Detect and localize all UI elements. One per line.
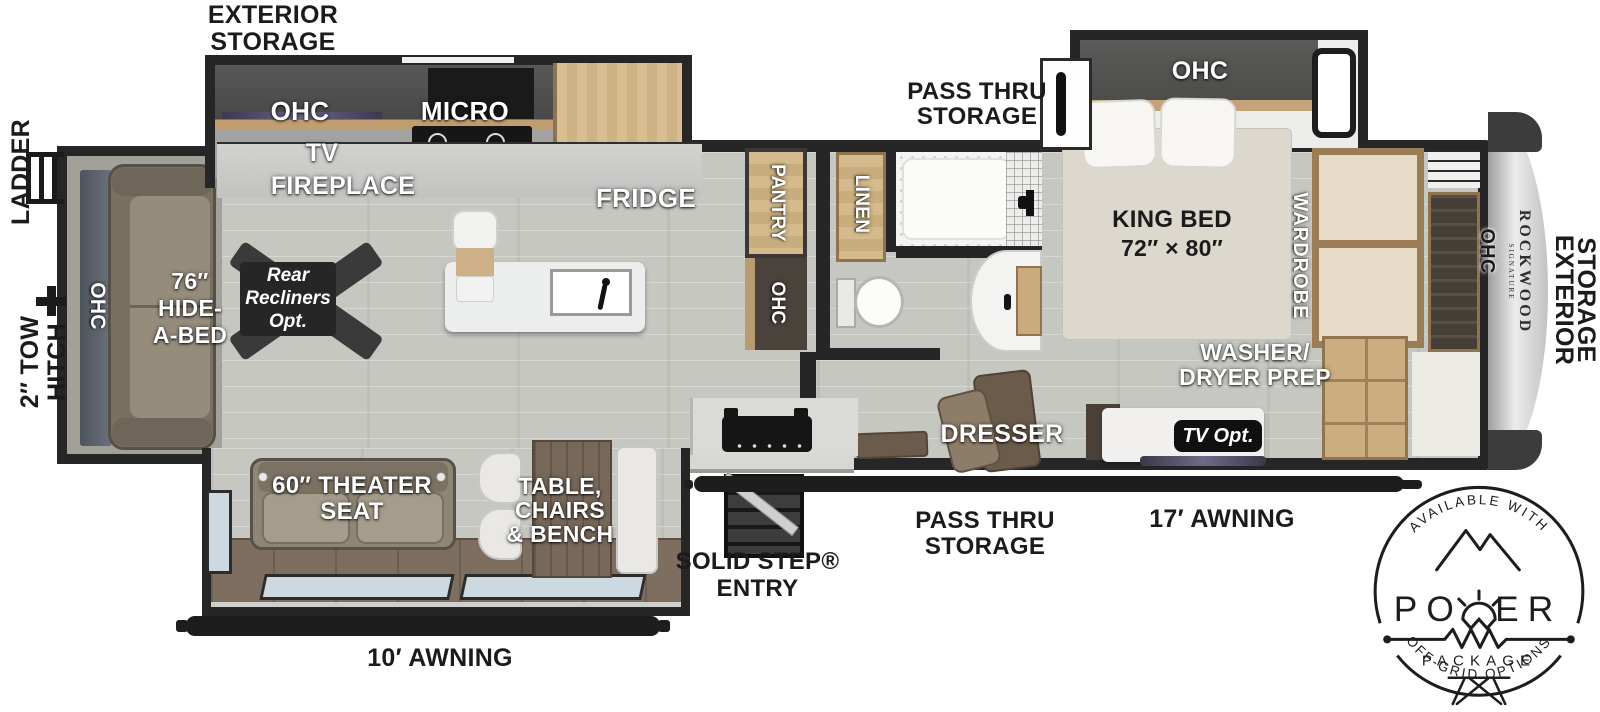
label-exterior-storage-top: EXTERIOR STORAGE	[160, 2, 386, 56]
front-slat-cabinet	[1428, 192, 1480, 352]
label-line: HITCH	[44, 282, 71, 442]
label-wardrobe: WARDROBE	[1287, 181, 1311, 331]
label-line: EXTERIOR	[160, 2, 386, 29]
grill-knobs	[732, 442, 802, 450]
label-ohc-kitchen: OHC	[250, 96, 350, 127]
label-ladder: LADDER	[7, 102, 37, 242]
bedroom-window	[1312, 48, 1356, 138]
wardrobe-frame	[1312, 148, 1424, 348]
recliners-option-box: Rear Recliners Opt.	[240, 262, 336, 336]
tv-opt-badge: TV Opt.	[1174, 420, 1262, 452]
fridge-cabinet	[553, 63, 682, 151]
badge-power-left: PO	[1394, 590, 1463, 629]
vanity-shelf	[1016, 266, 1042, 336]
label-line: TABLE,	[470, 474, 650, 498]
brand-name: ROCKWOOD	[1515, 197, 1533, 347]
label-line: KING BED	[1072, 206, 1272, 234]
slide-window-left	[206, 490, 232, 574]
recliners-option-label: Opt.	[240, 310, 336, 333]
flat-tv	[1140, 456, 1266, 466]
shower-head-icon	[1018, 196, 1031, 209]
closet-floor	[1412, 352, 1480, 456]
island-sink	[550, 269, 632, 316]
mountains-icon	[1437, 531, 1520, 570]
label-pass-thru-top: PASS THRU STORAGE	[877, 79, 1077, 129]
entry-step-pad	[856, 431, 929, 459]
awning-bar-front	[694, 476, 1404, 492]
pillow	[1081, 99, 1157, 170]
awning-cap	[684, 480, 693, 489]
label-line: ENTRY	[655, 575, 860, 602]
label-micro: MICRO	[405, 96, 525, 127]
label-dresser: DRESSER	[922, 420, 1082, 449]
bath-wall-bottom	[816, 348, 940, 360]
bath-wall-inner	[886, 152, 896, 252]
kitchen-slide-topper	[402, 57, 514, 63]
label-line: PASS THRU	[885, 508, 1085, 534]
entry-sill	[690, 469, 854, 473]
badge-power-right: ER	[1495, 590, 1562, 629]
label-ohc-front: OHC	[1476, 219, 1498, 283]
sofa-arm-top	[112, 168, 212, 196]
awning-cap	[658, 620, 670, 632]
bath-wall-left	[816, 140, 830, 360]
label-ohc-bedroom: OHC	[1150, 57, 1250, 86]
label-fridge: FRIDGE	[566, 183, 726, 214]
front-cap-corner-bottom	[1488, 430, 1542, 470]
power-package-badge: AVAILABLE WITH OFF-GRID OPTIONS PO ER PA…	[1358, 472, 1600, 710]
island-chair-base	[456, 276, 494, 302]
label-line: & BENCH	[470, 522, 650, 546]
label-line: SOLID STEP®	[655, 548, 860, 575]
label-exterior-storage-right-2: STORAGE	[1572, 225, 1600, 375]
label-line: PASS THRU	[877, 79, 1077, 104]
vanity-faucet	[1004, 294, 1011, 310]
toilet-bowl	[854, 276, 904, 328]
label-line: 2″ TOW	[17, 282, 44, 442]
label-dinette: TABLE, CHAIRS & BENCH	[470, 474, 650, 546]
awning-cap	[176, 620, 188, 632]
island-chair-cushion	[456, 248, 494, 276]
label-awning-rear: 10′ AWNING	[340, 644, 540, 673]
label-line: STORAGE	[885, 534, 1085, 560]
label-line: HIDE-	[132, 295, 248, 322]
label-fireplace: FIREPLACE	[243, 172, 443, 201]
label-line: CHAIRS	[470, 498, 650, 522]
label-line: 60″ THEATER	[252, 473, 452, 499]
label-line: A-BED	[132, 322, 248, 349]
toilet-tank	[836, 278, 856, 328]
front-cap-corner-top	[1488, 112, 1542, 152]
badge-top-text: AVAILABLE WITH	[1406, 492, 1552, 535]
label-line: SEAT	[252, 499, 452, 525]
label-line: WASHER/	[1150, 340, 1360, 365]
label-linen: LINEN	[850, 156, 872, 252]
sofa-arm-bottom	[112, 418, 212, 446]
label-ohc-lower: OHC	[766, 268, 788, 338]
label-tow-hitch: 2″ TOW HITCH	[17, 282, 73, 442]
slide-window-1	[259, 574, 455, 600]
recliners-option-label: Recliners	[240, 287, 336, 310]
label-ohc-rear: OHC	[85, 261, 109, 351]
label-tv: TV	[282, 139, 362, 168]
wardrobe-divider	[1312, 240, 1424, 248]
slide-trim-strip	[211, 602, 681, 607]
label-line: 76″	[132, 268, 248, 295]
shower-pan	[902, 158, 1010, 240]
sun-icon	[1459, 591, 1499, 628]
label-washer-dryer: WASHER/ DRYER PREP	[1150, 340, 1360, 390]
label-theater-seat: 60″ THEATER SEAT	[252, 473, 452, 525]
island-chair-back	[452, 210, 498, 252]
pillow	[1159, 97, 1236, 168]
label-solid-step-entry: SOLID STEP® ENTRY	[655, 548, 860, 602]
label-line: STORAGE	[877, 104, 1077, 129]
recliners-option-label: Rear	[240, 264, 336, 287]
label-line: 72″ × 80″	[1072, 234, 1272, 262]
label-king-bed: KING BED 72″ × 80″	[1072, 206, 1272, 262]
label-line: DRYER PREP	[1150, 365, 1360, 390]
label-line: STORAGE	[160, 29, 386, 56]
front-ohc-panel	[1428, 150, 1480, 188]
awning-bar-rear	[186, 616, 660, 636]
label-rockwood: ROCKWOOD SIGNATURE	[1503, 197, 1533, 347]
label-pantry: PANTRY	[766, 151, 788, 255]
floorplan-canvas: Rear Recliners Opt. EXTERIOR STORAGE LAD…	[0, 0, 1600, 712]
label-awning-front: 17′ AWNING	[1122, 505, 1322, 534]
label-pass-thru-bottom: PASS THRU STORAGE	[885, 508, 1085, 560]
label-hide-a-bed: 76″ HIDE- A-BED	[132, 268, 248, 349]
badge-package-text: PACKAGE	[1422, 653, 1536, 670]
brand-sub: SIGNATURE	[1507, 197, 1515, 347]
